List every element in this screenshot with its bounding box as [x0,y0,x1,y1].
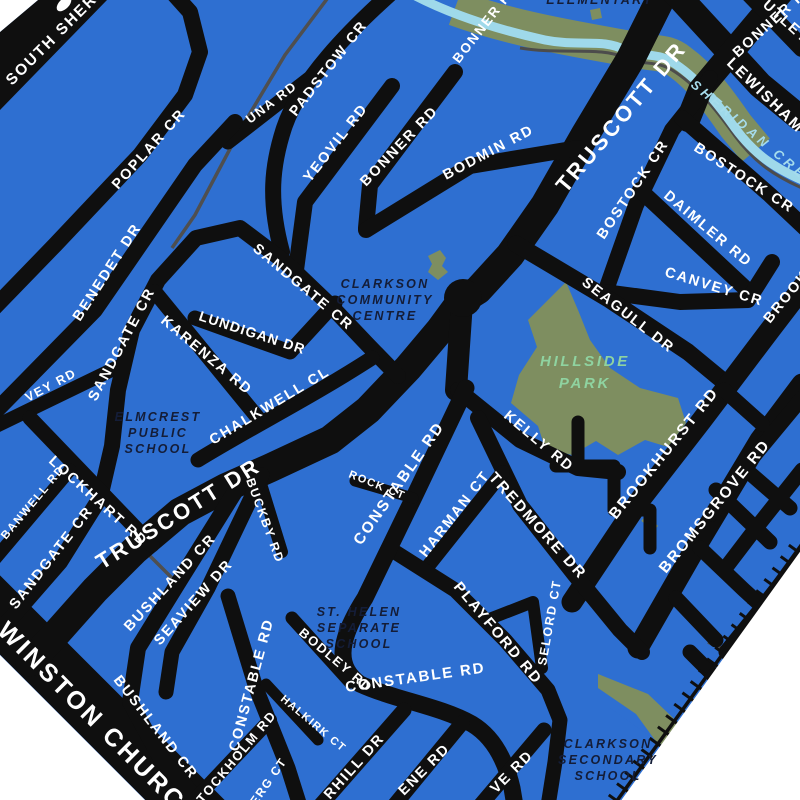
place-label-line: SECONDARY [558,753,658,767]
place-label-line: SCHOOL [575,769,642,783]
place-label-line: PUBLIC [128,426,188,440]
place-label-st-helen-separate-school: ST. HELENSEPARATESCHOOL [317,605,402,651]
small-green-dot [590,8,602,20]
place-label-line: CENTRE [353,309,418,323]
place-label-line: ST. HELEN [317,605,402,619]
place-label-line: SCHOOL [326,637,393,651]
place-label-line: COMMUNITY [336,293,433,307]
place-label-line: ELEMENTARY [546,0,653,7]
place-label-line: CLARKSON [341,277,430,291]
place-label-line: SEPARATE [317,621,401,635]
place-label-line: PARK [559,375,611,392]
place-label-line: HILLSIDE [540,353,630,370]
neighbourhood-map: SOUTH SHERIDAN WAYPOPLAR CRUNA RDPADSTOW… [0,0,800,800]
place-label-elementary-school-clipped: ELEMENTARY [546,0,653,7]
junction-blob [444,279,482,317]
place-label-line: SCHOOL [125,442,192,456]
place-label-line: CLARKSON [564,737,653,751]
place-label-line: ELMCREST [115,410,202,424]
